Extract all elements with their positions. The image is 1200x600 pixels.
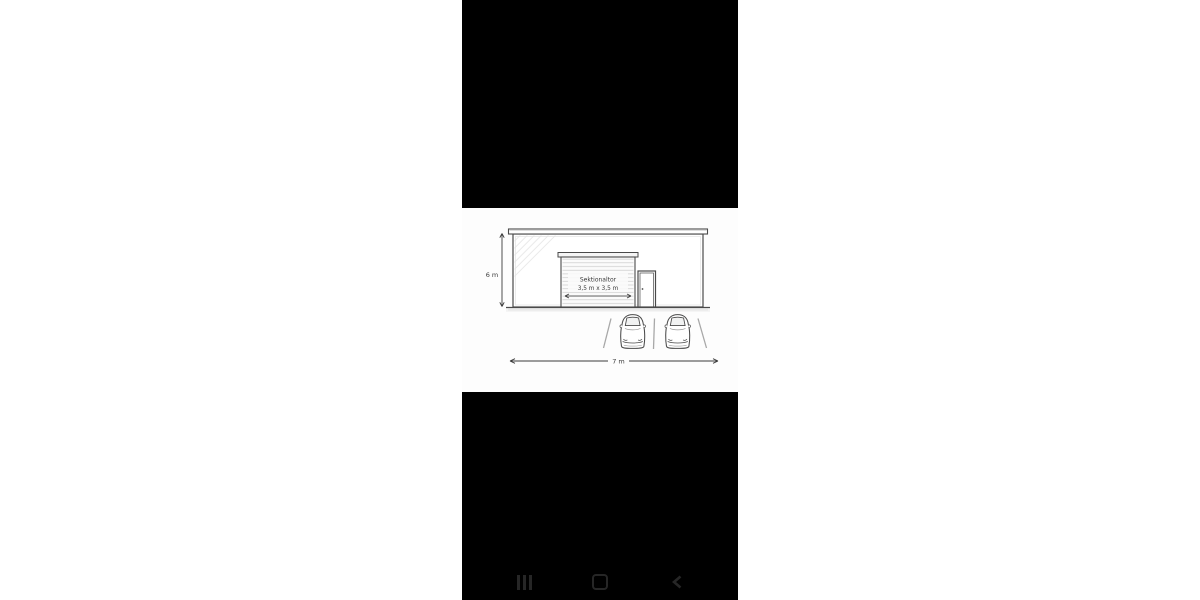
car-right bbox=[665, 315, 691, 349]
home-button[interactable] bbox=[584, 566, 616, 598]
parking-lines bbox=[604, 319, 707, 350]
recents-button[interactable] bbox=[508, 566, 540, 598]
screenshot-root: Sektionaltor 3,5 m x 3,5 m bbox=[0, 0, 1200, 600]
door-type-label: Sektionaltor bbox=[580, 277, 617, 284]
android-nav-bar bbox=[462, 552, 738, 600]
roof-band bbox=[509, 229, 708, 234]
recents-icon bbox=[517, 575, 532, 590]
door-knob bbox=[642, 288, 644, 290]
width-dimension: 7 m bbox=[510, 358, 718, 366]
height-label: 6 m bbox=[486, 271, 499, 279]
home-icon bbox=[592, 574, 608, 590]
car-left bbox=[620, 315, 646, 349]
door-size-label: 3,5 m x 3,5 m bbox=[578, 286, 619, 292]
pedestrian-door bbox=[638, 271, 656, 307]
sectional-door: Sektionaltor 3,5 m x 3,5 m bbox=[558, 253, 638, 308]
garage-diagram: Sektionaltor 3,5 m x 3,5 m bbox=[462, 208, 738, 392]
phone-screen: Sektionaltor 3,5 m x 3,5 m bbox=[462, 0, 738, 600]
back-icon bbox=[669, 573, 687, 591]
width-label: 7 m bbox=[612, 358, 625, 366]
height-dimension: 6 m bbox=[486, 234, 504, 307]
back-button[interactable] bbox=[662, 566, 694, 598]
image-canvas: Sektionaltor 3,5 m x 3,5 m bbox=[462, 208, 738, 392]
ground-line bbox=[506, 308, 710, 312]
